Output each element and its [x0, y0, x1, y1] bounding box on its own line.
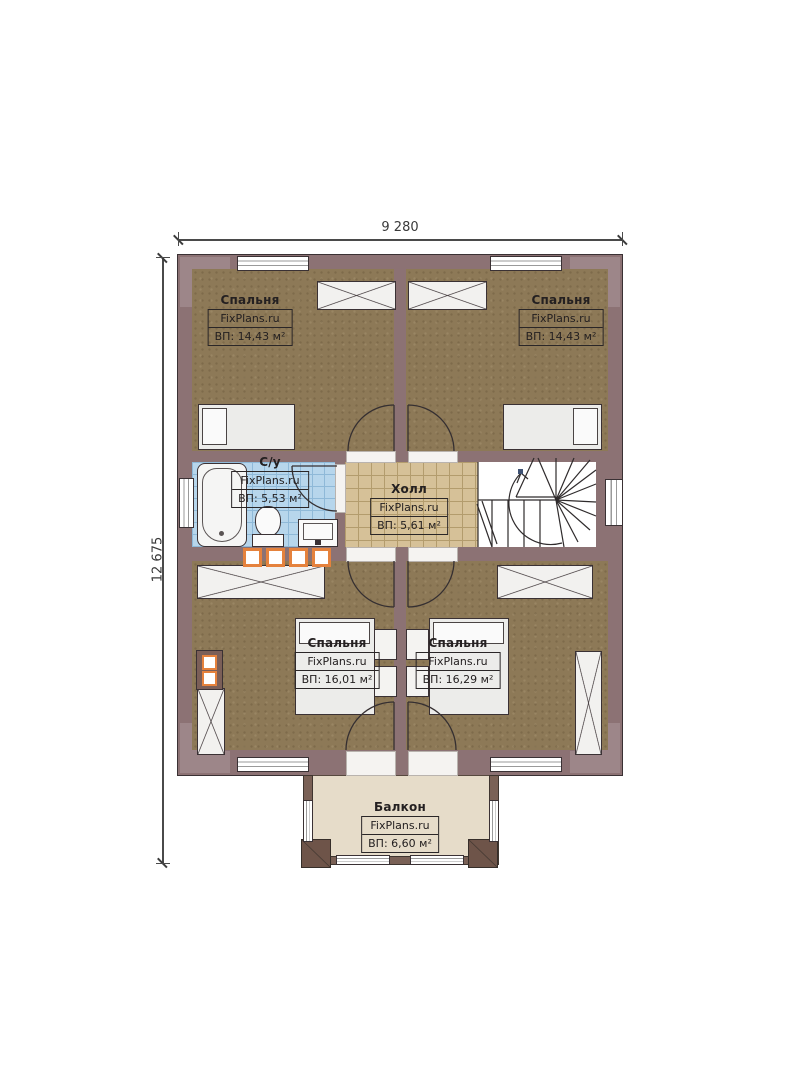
toilet-tank — [252, 534, 284, 547]
room-info-box: FixPlans.ru ВП: 5,61 м² — [370, 498, 448, 535]
room-name: Спальня — [208, 293, 293, 307]
balcony-post — [468, 839, 498, 868]
dimension-left-label: 12 675 — [151, 515, 166, 605]
room-area: ВП: 6,60 м² — [362, 834, 438, 852]
room-label-bedroom-bottom-left: Спальня FixPlans.ru ВП: 16,01 м² — [295, 636, 380, 689]
window — [490, 757, 562, 772]
vent-cell — [202, 671, 217, 686]
room-label-bedroom-top-right: Спальня FixPlans.ru ВП: 14,43 м² — [519, 293, 604, 346]
bed — [198, 404, 295, 450]
room-name: Спальня — [295, 636, 380, 650]
dimension-line-top — [178, 239, 622, 241]
wardrobe — [197, 565, 325, 599]
balcony-post — [301, 839, 331, 868]
door-threshold — [346, 451, 396, 463]
window — [490, 256, 562, 271]
room-area: ВП: 14,43 м² — [520, 327, 603, 345]
balcony-window — [303, 800, 313, 842]
watermark: FixPlans.ru — [232, 472, 308, 489]
room-area: ВП: 16,29 м² — [417, 670, 500, 688]
room-name: Холл — [370, 482, 448, 496]
vent-shaft — [196, 650, 223, 690]
room-info-box: FixPlans.ru ВП: 16,01 м² — [295, 652, 380, 689]
radiator-segment — [289, 548, 308, 567]
room-name: С/у — [231, 455, 309, 469]
pillow — [202, 408, 227, 445]
room-label-bathroom: С/у FixPlans.ru ВП: 5,53 м² — [231, 455, 309, 508]
room-info-box: FixPlans.ru ВП: 6,60 м² — [361, 816, 439, 853]
radiator-segment — [312, 548, 331, 567]
wardrobe — [497, 565, 593, 599]
watermark: FixPlans.ru — [520, 310, 603, 327]
watermark: FixPlans.ru — [371, 499, 447, 516]
room-label-bedroom-bottom-right: Спальня FixPlans.ru ВП: 16,29 м² — [416, 636, 501, 689]
room-area: ВП: 16,01 м² — [296, 670, 379, 688]
window — [237, 256, 309, 271]
room-area: ВП: 5,53 м² — [232, 489, 308, 507]
room-area: ВП: 5,61 м² — [371, 516, 447, 534]
dimension-ext — [156, 863, 170, 864]
room-info-box: FixPlans.ru ВП: 14,43 м² — [519, 309, 604, 346]
room-info-box: FixPlans.ru ВП: 14,43 м² — [208, 309, 293, 346]
floorplan-canvas: 9 280 12 675 — [0, 0, 792, 1080]
room-label-balcony: Балкон FixPlans.ru ВП: 6,60 м² — [361, 800, 439, 853]
dimension-ext — [156, 257, 170, 258]
toilet — [255, 506, 281, 537]
wardrobe — [408, 281, 487, 310]
room-name: Балкон — [361, 800, 439, 814]
room-info-box: FixPlans.ru ВП: 5,53 м² — [231, 471, 309, 508]
room-name: Спальня — [519, 293, 604, 307]
watermark: FixPlans.ru — [417, 653, 500, 670]
balcony-window — [410, 855, 464, 865]
wardrobe — [317, 281, 396, 310]
radiator-segment — [243, 548, 262, 567]
door-threshold — [346, 547, 396, 562]
room-label-hall: Холл FixPlans.ru ВП: 5,61 м² — [370, 482, 448, 535]
window — [237, 757, 309, 772]
radiator-segment — [266, 548, 285, 567]
balcony-window — [336, 855, 390, 865]
room-name: Спальня — [416, 636, 501, 650]
dimension-top-label: 9 280 — [178, 220, 622, 235]
room-area: ВП: 14,43 м² — [209, 327, 292, 345]
window — [605, 479, 623, 526]
vent-cell — [202, 655, 217, 670]
room-label-bedroom-top-left: Спальня FixPlans.ru ВП: 14,43 м² — [208, 293, 293, 346]
wardrobe — [575, 651, 602, 755]
balcony-window — [489, 800, 499, 842]
window — [179, 478, 194, 528]
door-threshold — [408, 547, 458, 562]
room-info-box: FixPlans.ru ВП: 16,29 м² — [416, 652, 501, 689]
watermark: FixPlans.ru — [209, 310, 292, 327]
balcony-door-threshold — [346, 751, 396, 776]
sink — [298, 519, 338, 547]
room-floor-stairwell — [478, 462, 596, 547]
pillow — [573, 408, 598, 445]
wardrobe — [197, 688, 225, 755]
door-threshold — [335, 464, 346, 513]
bed — [503, 404, 602, 450]
door-threshold — [408, 451, 458, 463]
dimension-ext — [622, 232, 623, 246]
watermark: FixPlans.ru — [362, 817, 438, 834]
balcony-door-threshold — [408, 751, 458, 776]
watermark: FixPlans.ru — [296, 653, 379, 670]
